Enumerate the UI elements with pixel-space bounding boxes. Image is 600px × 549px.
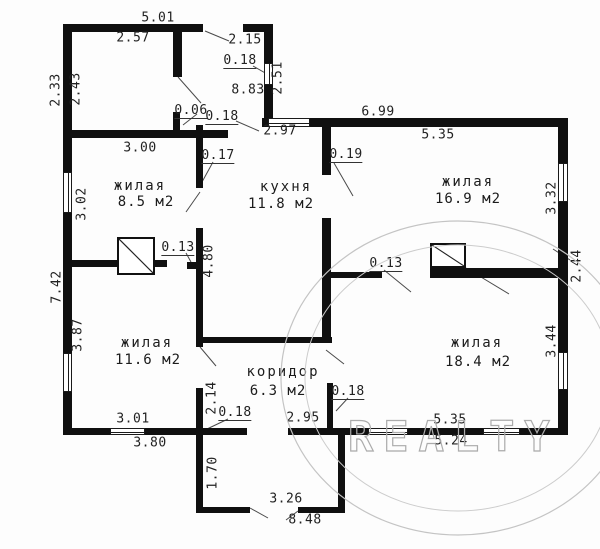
wall — [63, 428, 110, 435]
room-area-kitchen: 11.8 м2 — [248, 196, 314, 212]
room-name-corridor: коридор — [246, 364, 319, 380]
dim-label: 3.00 — [123, 141, 156, 156]
dim-label: 0.19 — [329, 147, 362, 163]
dim-label: 2.57 — [116, 31, 149, 46]
room-area-zhilaya-1: 8.5 м2 — [118, 194, 175, 210]
dim-label: 0.17 — [201, 148, 234, 164]
dim-label-vertical: 3.32 — [545, 181, 560, 214]
dim-label: 0.18 — [331, 384, 364, 400]
wall — [558, 118, 568, 163]
wall — [155, 260, 167, 267]
dim-label-vertical: 7.42 — [50, 270, 65, 303]
dim-label: 0.13 — [369, 256, 402, 272]
dim-label: 5.01 — [141, 11, 174, 26]
flue-square — [430, 243, 466, 268]
dim-label: 2.95 — [286, 411, 319, 426]
window — [63, 353, 72, 392]
dim-label: 0.18 — [223, 53, 256, 69]
dim-label: 0.18 — [205, 109, 238, 125]
room-name-zhilaya-4: жилая — [451, 335, 503, 351]
dim-label-vertical: 2.43 — [69, 72, 84, 105]
wall — [520, 428, 568, 435]
wall — [430, 268, 568, 278]
dim-label: 0.06 — [174, 103, 207, 119]
wall — [72, 260, 117, 267]
room-area-zhilaya-3: 11.6 м2 — [115, 352, 181, 368]
dim-label: 0.13 — [161, 240, 194, 256]
dim-label: 8.48 — [288, 513, 321, 528]
dim-label: 0.18 — [218, 405, 251, 421]
window — [558, 163, 568, 202]
dim-label-vertical: 1.70 — [206, 456, 221, 489]
dim-label: 5.35 — [421, 128, 454, 143]
wall — [288, 428, 368, 435]
dim-label-vertical: 2.51 — [271, 61, 286, 94]
wall — [331, 272, 382, 278]
dim-label: 2.97 — [263, 124, 296, 139]
wall — [196, 337, 332, 343]
room-name-zhilaya-2: жилая — [442, 174, 494, 190]
dim-label: 3.01 — [116, 412, 149, 427]
dim-label: 6.99 — [361, 105, 394, 120]
room-name-zhilaya-3: жилая — [121, 335, 173, 351]
window — [110, 428, 145, 435]
dim-label: 3.80 — [133, 436, 166, 451]
wall — [196, 435, 203, 513]
window — [483, 428, 520, 435]
wall — [310, 118, 568, 127]
dim-label: 5.35 — [433, 413, 466, 428]
dim-label: 5.24 — [434, 434, 467, 449]
flue-square — [117, 237, 155, 275]
dim-label-vertical: 3.87 — [71, 318, 86, 351]
dim-label-vertical: 2.33 — [49, 73, 64, 106]
wall — [63, 130, 228, 138]
dim-label-vertical: 4.80 — [202, 244, 217, 277]
window — [368, 428, 408, 435]
room-area-zhilaya-2: 16.9 м2 — [435, 191, 501, 207]
dim-label-vertical: 2.14 — [205, 381, 220, 414]
room-name-zhilaya-1: жилая — [114, 178, 166, 194]
wall — [187, 262, 196, 269]
room-area-zhilaya-4: 18.4 м2 — [445, 354, 511, 370]
window — [558, 352, 568, 390]
dim-label-vertical: 3.02 — [75, 187, 90, 220]
room-area-corridor: 6.3 м2 — [250, 383, 307, 399]
wall — [264, 24, 273, 63]
dim-label-vertical: 3.44 — [545, 324, 560, 357]
dim-label-vertical: 2.44 — [570, 249, 585, 282]
floor-plan: жилая 8.5 м2 кухня 11.8 м2 жилая 16.9 м2… — [0, 0, 600, 549]
wall — [338, 428, 345, 513]
dim-label: 3.26 — [269, 492, 302, 507]
hall-area-label: 8.83 — [231, 83, 264, 98]
room-name-kitchen: кухня — [260, 179, 312, 195]
wall — [196, 388, 203, 435]
dim-label: 2.15 — [228, 33, 261, 48]
window — [63, 172, 72, 213]
wall — [173, 32, 182, 77]
wall — [196, 507, 250, 513]
wall — [322, 218, 331, 343]
